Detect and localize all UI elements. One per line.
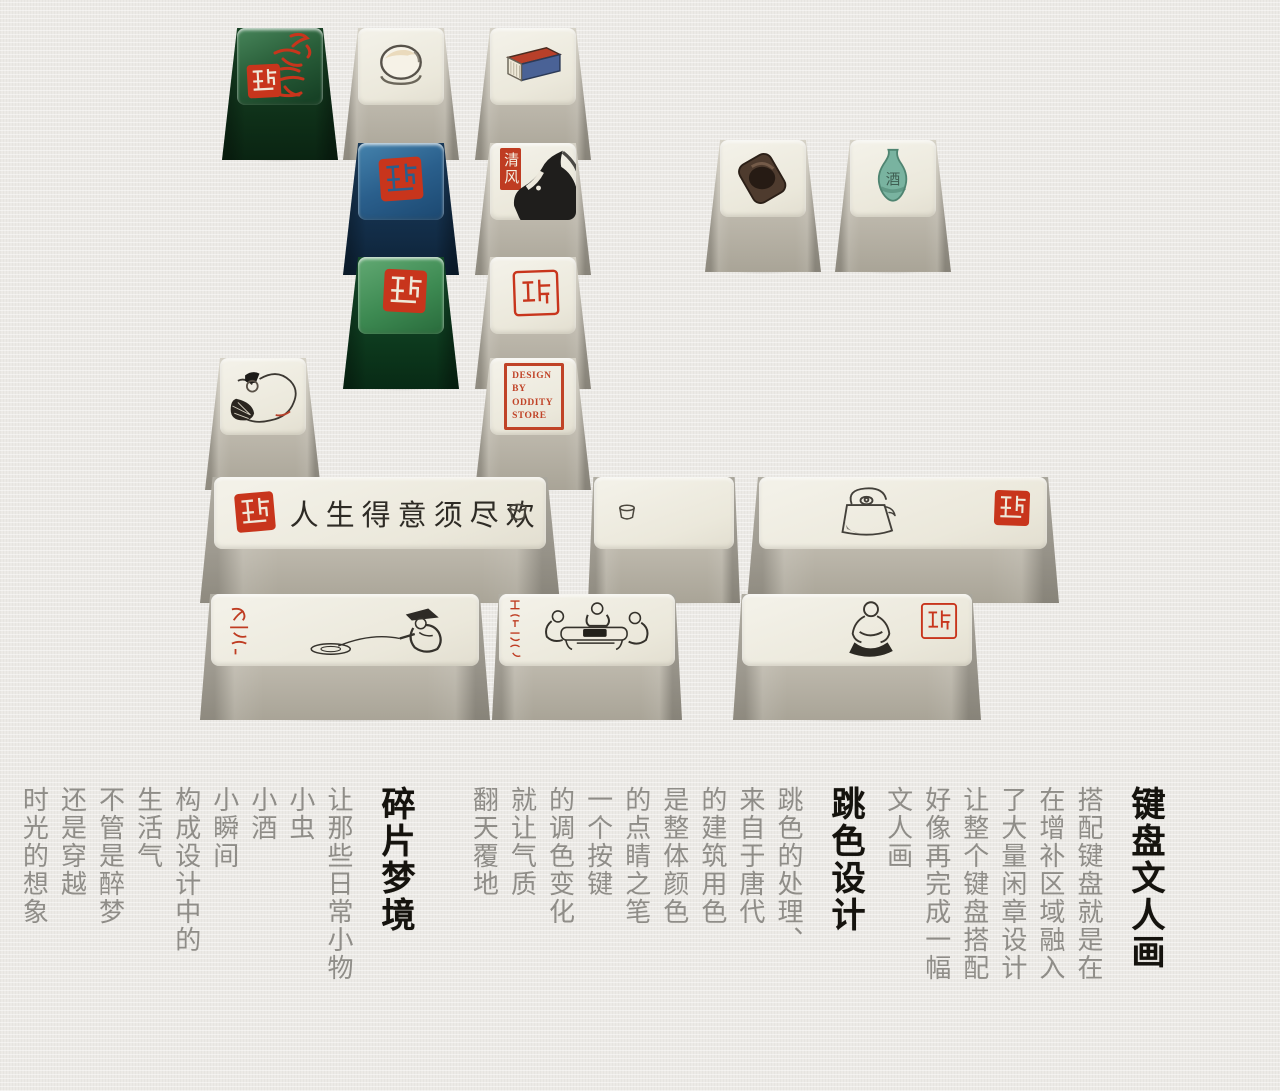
horse-icon: [506, 144, 576, 220]
bowl-icon: [370, 37, 432, 95]
inkstone-icon: [732, 150, 794, 206]
key-teacup: [588, 477, 740, 603]
text-column: 来自于唐代: [736, 786, 764, 926]
oddity-store-seal: DESIGN BY ODDITY STORE: [504, 363, 564, 430]
text-column: 的调色变化: [545, 786, 573, 926]
section-fragment-dreams: 碎片梦境 让那些日常小物 小虫 小酒 小瞬间 构成设计中的 生活气 不管是醉梦 …: [19, 786, 412, 982]
wine-glyph: 酒: [886, 171, 901, 188]
text-column: 好像再完成一幅: [922, 786, 950, 982]
keycap-top: [237, 28, 323, 105]
text-column: 构成设计中的: [172, 786, 200, 954]
spacebar-calligraphy: 人生得意须尽欢: [200, 477, 560, 603]
text-column: 搭配键盘就是在: [1074, 786, 1102, 982]
keycap-top: DESIGN BY ODDITY STORE: [490, 358, 576, 435]
keycap-horse: 清风: [475, 143, 591, 275]
keycap-oddity-store: DESIGN BY ODDITY STORE: [475, 358, 591, 490]
spacebar-gathering: [492, 594, 682, 720]
seal-outline-icon: [511, 268, 561, 318]
text-column: 小瞬间: [210, 786, 238, 870]
section-heading: 键盘文人画: [1128, 786, 1162, 971]
keycap-top: [220, 358, 306, 435]
keycap-top: [720, 140, 806, 217]
poster-canvas: 清风 酒: [0, 0, 1280, 1091]
oddity-line: BY: [512, 383, 556, 396]
calligraphy-text: 人生得意须尽欢: [290, 492, 491, 534]
keycap-top: [358, 28, 444, 105]
keycap-top: 酒: [850, 140, 936, 217]
text-column: 文人画: [884, 786, 912, 870]
oddity-line: STORE: [512, 410, 556, 423]
seal-stamp-icon: [992, 488, 1031, 527]
text-column: 就让气质: [507, 786, 535, 898]
wine-flask-icon: 酒: [873, 145, 913, 211]
oddity-line: DESIGN: [512, 370, 556, 383]
text-column: 让整个键盘搭配: [960, 786, 988, 982]
section-color-pop: 跳色设计 跳色的处理、 来自于唐代 的建筑用色 是整体颜色 的点睛之笔 一个按键…: [469, 786, 862, 954]
section-literati-painting: 键盘文人画 搭配键盘就是在 在增补区域融入 了大量闲章设计 让整个键盘搭配 好像…: [884, 786, 1162, 982]
keycap-top: [759, 477, 1047, 549]
keycap-green-calligraphy: [222, 28, 338, 160]
keycap-top: [594, 477, 734, 549]
keycap-top: [211, 594, 479, 666]
keycap-top: [358, 143, 444, 220]
keycap-top: [499, 594, 675, 666]
teapot-icon: [821, 481, 921, 547]
section-heading: 碎片梦境: [378, 786, 412, 934]
text-column: 时光的想象: [19, 786, 47, 926]
fisherman-icon: [249, 598, 471, 664]
seated-elder-icon: [838, 597, 904, 665]
text-column: 翻天覆地: [469, 786, 497, 898]
oddity-line: ODDITY: [512, 397, 556, 410]
seal-stamp-icon: [232, 489, 278, 535]
text-column: 不管是醉梦: [95, 786, 123, 926]
text-column: 让那些日常小物: [324, 786, 352, 982]
keycap-inkstone: [705, 140, 821, 272]
text-column: 小酒: [248, 786, 276, 842]
spacebar-fisherman: [200, 594, 490, 720]
seal-outline-icon: [920, 602, 958, 640]
text-column: 在增补区域融入: [1036, 786, 1064, 982]
keycap-bowl: [343, 28, 459, 160]
keycap-top: [490, 28, 576, 105]
keycap-wine-flask: 酒: [835, 140, 951, 272]
keycap-top: 清风: [490, 143, 576, 220]
section-heading: 跳色设计: [828, 786, 862, 934]
seal-stamp-icon: [376, 153, 425, 204]
keycap-blue-seal: [343, 143, 459, 275]
text-column: 一个按键: [584, 786, 612, 898]
keycap-top: 人生得意须尽欢: [214, 477, 547, 549]
text-column: 了大量闲章设计: [998, 786, 1026, 982]
key-teapot: [747, 477, 1059, 603]
keycap-top: [742, 594, 971, 666]
teacup-icon: [616, 501, 638, 525]
gathering-figures-icon: [527, 596, 669, 662]
dozing-figure-icon: [225, 361, 303, 433]
seal-stamp-icon: [245, 61, 283, 101]
keycap-book: [475, 28, 591, 160]
keycap-dozing-figure: [205, 358, 321, 490]
text-column: 生活气: [134, 786, 162, 870]
keycap-top: [358, 257, 444, 334]
red-inscription-icon: [505, 598, 525, 662]
seal-stamp-icon: [381, 266, 429, 316]
teacup-icon: [506, 501, 530, 525]
book-icon: [498, 42, 568, 92]
spacebar-seated-elder: [733, 594, 981, 720]
text-column: 的建筑用色: [698, 786, 726, 926]
text-column: 是整体颜色: [660, 786, 688, 926]
text-column: 的点睛之笔: [622, 786, 650, 926]
text-column: 跳色的处理、: [774, 786, 802, 954]
text-column: 还是穿越: [57, 786, 85, 898]
keycap-top: [490, 257, 576, 334]
keycap-green-seal: [343, 257, 459, 389]
text-column: 小虫: [286, 786, 314, 842]
